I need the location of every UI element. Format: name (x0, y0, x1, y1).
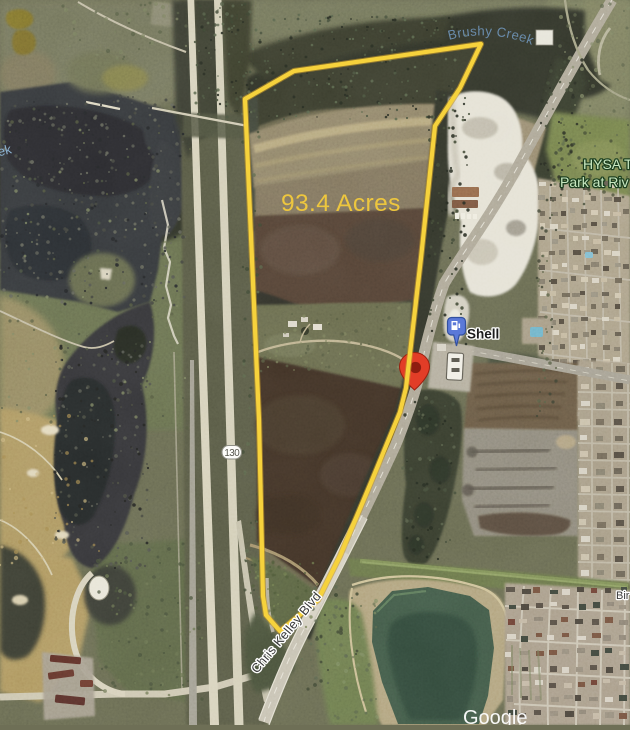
svg-text:130: 130 (224, 448, 240, 459)
svg-text:Park at Riv: Park at Riv (560, 174, 628, 190)
svg-text:Google: Google (463, 707, 528, 725)
svg-text:HYSA T: HYSA T (583, 156, 630, 172)
svg-text:93.4 Acres: 93.4 Acres (281, 190, 401, 217)
svg-text:Bir: Bir (616, 590, 630, 602)
svg-text:Shell: Shell (467, 327, 499, 342)
